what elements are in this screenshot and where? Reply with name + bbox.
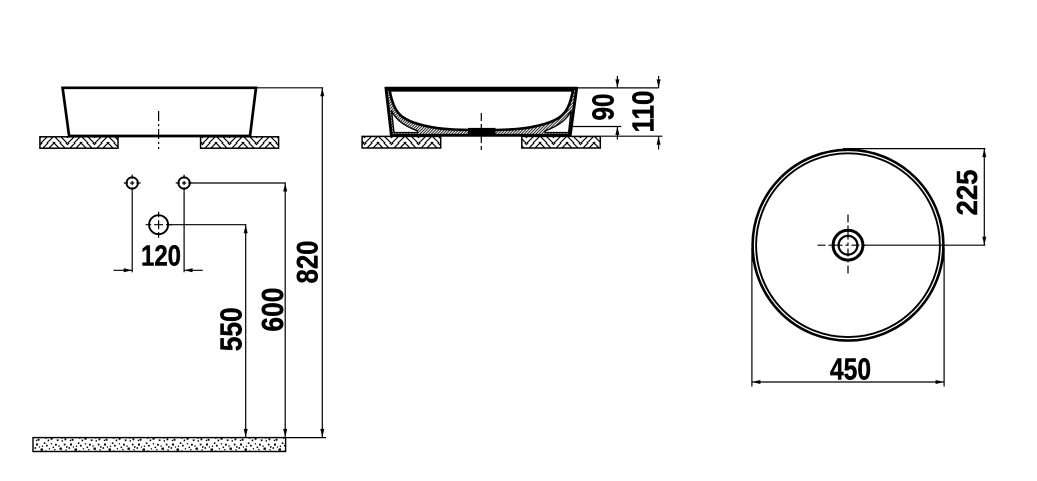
svg-text:225: 225 [952, 169, 984, 215]
svg-text:450: 450 [830, 353, 871, 387]
svg-text:120: 120 [141, 241, 181, 273]
svg-text:550: 550 [215, 307, 249, 351]
svg-text:110: 110 [627, 91, 661, 133]
svg-text:820: 820 [292, 241, 325, 284]
svg-text:90: 90 [587, 94, 621, 121]
svg-text:600: 600 [256, 288, 290, 332]
